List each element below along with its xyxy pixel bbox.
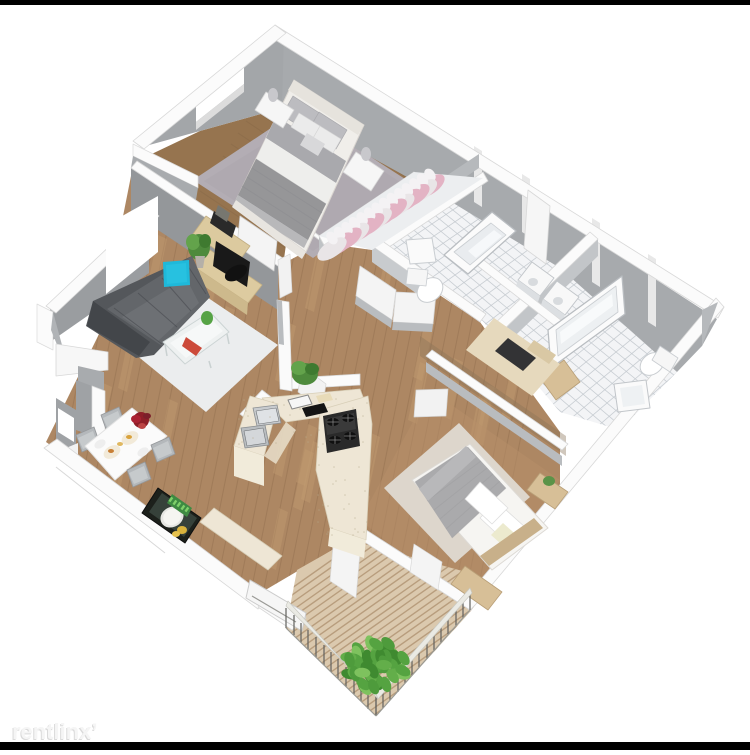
svg-text:rentlinx’: rentlinx’ bbox=[12, 719, 98, 744]
